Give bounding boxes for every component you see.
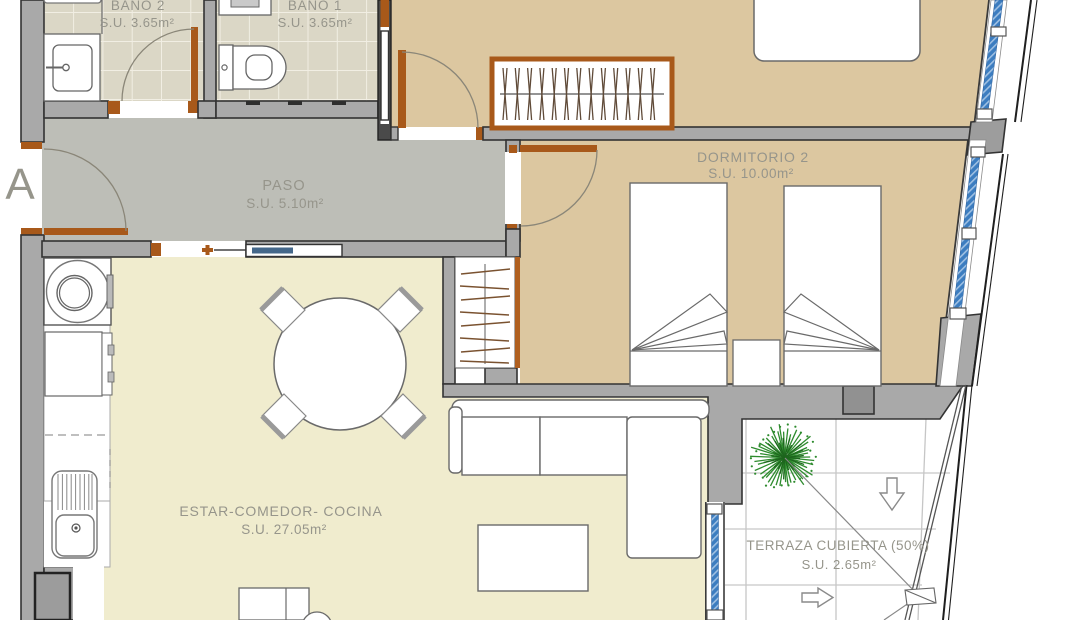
svg-text:S.U. 3.65m²: S.U. 3.65m² (100, 15, 175, 30)
svg-text:S.U. 10.00m²: S.U. 10.00m² (708, 166, 794, 181)
svg-text:PASO: PASO (262, 178, 305, 194)
svg-text:BAÑO 2: BAÑO 2 (111, 0, 165, 13)
svg-text:S.U. 3.65m²: S.U. 3.65m² (278, 15, 353, 30)
svg-text:BAÑO 1: BAÑO 1 (288, 0, 342, 13)
svg-text:TERRAZA CUBIERTA (50%): TERRAZA CUBIERTA (50%) (746, 538, 929, 553)
svg-text:S.U. 2.65m²: S.U. 2.65m² (802, 557, 877, 572)
svg-text:S.U. 27.05m²: S.U. 27.05m² (241, 522, 327, 537)
svg-text:ESTAR-COMEDOR- COCINA: ESTAR-COMEDOR- COCINA (179, 503, 382, 519)
svg-text:DORMITORIO 2: DORMITORIO 2 (697, 149, 809, 165)
svg-text:A: A (5, 160, 35, 209)
svg-text:S.U. 5.10m²: S.U. 5.10m² (246, 196, 324, 211)
